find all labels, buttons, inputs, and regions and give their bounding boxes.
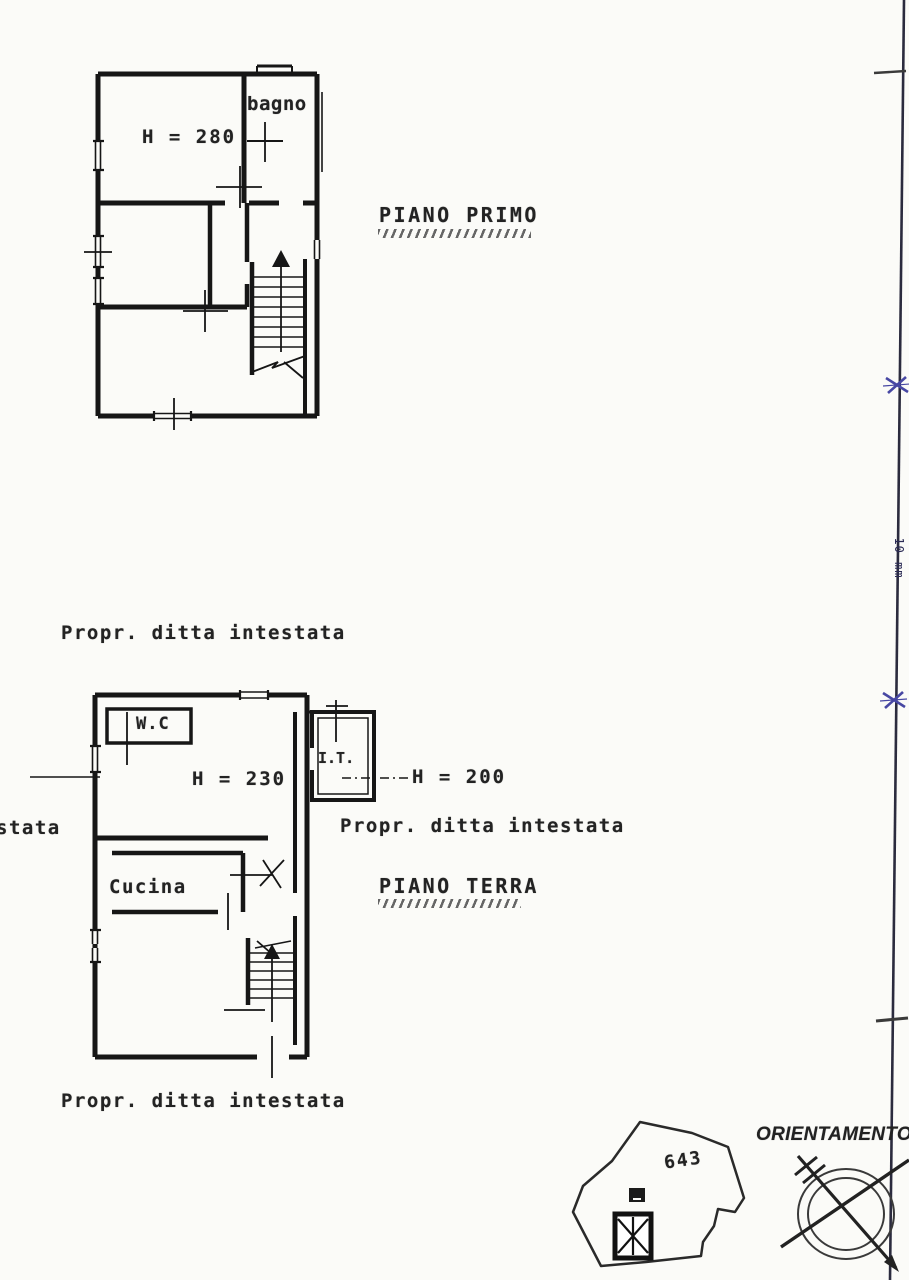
owner-label-left-cut: stata	[0, 817, 61, 839]
first-floor-height-label: H = 280	[142, 126, 236, 148]
cucina-label: Cucina	[109, 876, 187, 898]
subject-building	[615, 1214, 651, 1258]
border-tick-bottom	[876, 1018, 908, 1021]
registration-mark-upper	[883, 377, 909, 393]
sheet-border	[874, 0, 909, 1280]
registration-mark-lower	[880, 692, 907, 708]
door-swing	[260, 860, 284, 888]
sheet-border-line	[890, 0, 904, 1280]
piano-terra-underline	[378, 899, 521, 908]
bagno-label: bagno	[247, 93, 307, 115]
parcel-sketch	[573, 1122, 744, 1266]
orientation-label: ORIENTAMENTO	[756, 1124, 909, 1146]
wc-label: W.C	[136, 714, 170, 734]
owner-label-top: Propr. ditta intestata	[61, 622, 346, 644]
piano-primo-underline	[378, 229, 531, 238]
owner-label-middle: Propr. ditta intestata	[340, 815, 625, 837]
first-floor-plan	[84, 66, 322, 430]
border-tick-top	[874, 71, 906, 73]
scanned-floorplan-sheet: bagno H = 280 PIANO PRIMO Propr. ditta i…	[0, 0, 909, 1280]
piano-terra-title: PIANO TERRA	[379, 874, 539, 898]
ground-floor-height-label: H = 230	[192, 768, 286, 790]
north-south-needle	[798, 1156, 896, 1268]
margin-note: 10 mm	[890, 494, 906, 622]
first-floor-windows	[96, 141, 320, 419]
stairs-up-arrow-icon	[272, 250, 290, 267]
ground-floor-windows	[93, 692, 269, 962]
parcel-boundary	[573, 1122, 744, 1266]
owner-label-bottom: Propr. ditta intestata	[61, 1090, 346, 1112]
annex-height-label: H = 200	[412, 766, 506, 788]
first-floor-stairs	[252, 250, 305, 378]
it-label: I.T.	[318, 749, 354, 767]
piano-primo-title: PIANO PRIMO	[379, 203, 539, 227]
